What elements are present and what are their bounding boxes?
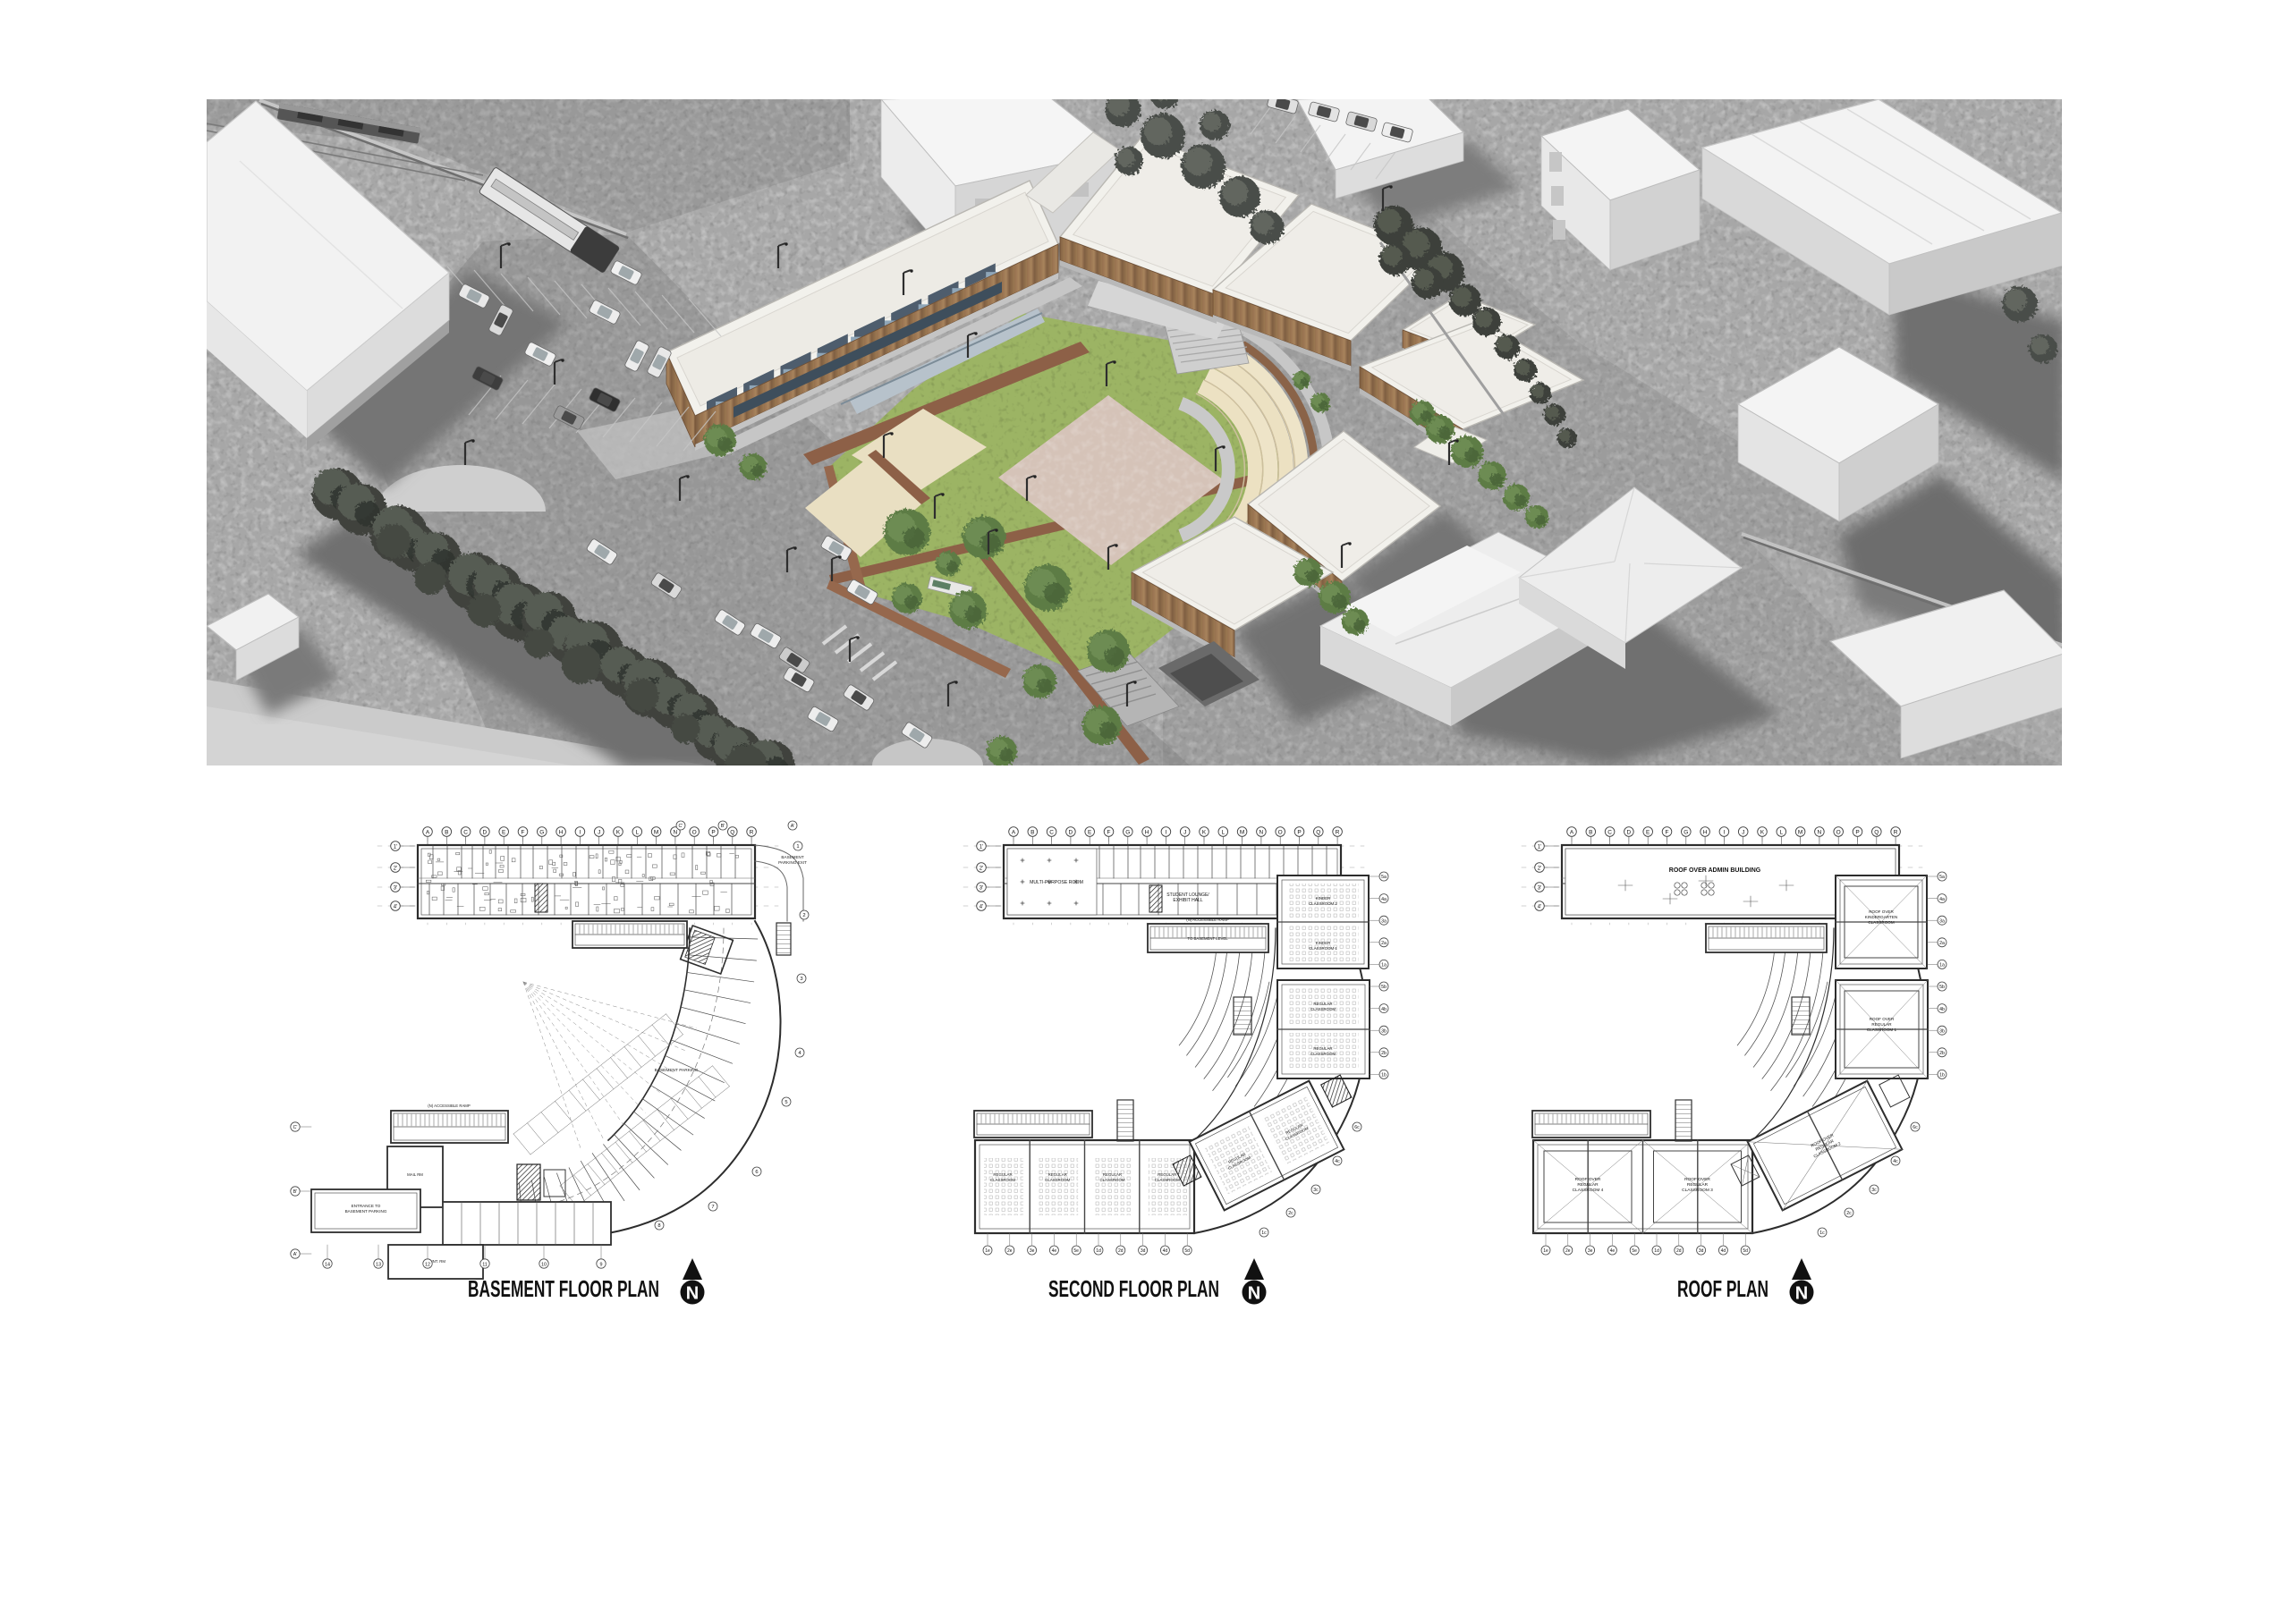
svg-text:3b: 3b xyxy=(1939,1028,1945,1034)
svg-text:ROOF OVER: ROOF OVER xyxy=(1575,1177,1601,1182)
svg-text:1a: 1a xyxy=(1939,963,1945,968)
svg-text:BASEMENT FLOOR PLAN: BASEMENT FLOOR PLAN xyxy=(468,1275,659,1302)
svg-text:REGULAR: REGULAR xyxy=(1313,1046,1332,1051)
svg-text:1e: 1e xyxy=(985,1248,990,1254)
svg-text:3c: 3c xyxy=(1871,1188,1877,1193)
svg-text:I: I xyxy=(1723,829,1725,835)
svg-text:CLASSROOM: CLASSROOM xyxy=(1868,920,1895,925)
svg-text:K: K xyxy=(1760,829,1765,835)
svg-text:5e: 5e xyxy=(1073,1248,1079,1254)
svg-text:4c: 4c xyxy=(1335,1159,1340,1164)
svg-text:ROOF PLAN: ROOF PLAN xyxy=(1677,1275,1768,1302)
svg-text:5b: 5b xyxy=(1939,985,1945,990)
svg-text:ROOF OVER: ROOF OVER xyxy=(1870,1017,1895,1021)
svg-text:10: 10 xyxy=(541,1262,547,1267)
svg-text:4e: 4e xyxy=(1610,1248,1616,1254)
svg-text:F: F xyxy=(1666,829,1669,835)
svg-text:R: R xyxy=(1894,829,1898,835)
svg-text:REGULAR: REGULAR xyxy=(1687,1182,1709,1188)
svg-text:C: C xyxy=(1607,829,1612,835)
svg-text:B: B xyxy=(1589,829,1592,835)
svg-text:4d: 4d xyxy=(1163,1248,1168,1254)
svg-text:5e: 5e xyxy=(1632,1248,1637,1254)
svg-text:B': B' xyxy=(721,824,725,829)
svg-text:N: N xyxy=(1818,829,1822,835)
svg-text:CLASSROOM: CLASSROOM xyxy=(1310,1007,1336,1011)
svg-text:CLASSROOM 2: CLASSROOM 2 xyxy=(1309,901,1337,906)
svg-text:1': 1' xyxy=(394,844,397,850)
svg-text:TO BASEMENT LEVEL: TO BASEMENT LEVEL xyxy=(1187,936,1228,941)
svg-text:N: N xyxy=(686,1284,699,1304)
svg-text:E: E xyxy=(502,829,506,835)
svg-text:6c: 6c xyxy=(1354,1125,1360,1130)
svg-text:CLASSROOM 1: CLASSROOM 1 xyxy=(1867,1028,1897,1032)
svg-text:N: N xyxy=(1248,1284,1260,1304)
svg-text:D: D xyxy=(483,829,488,835)
svg-text:1: 1 xyxy=(796,844,799,850)
svg-text:5b: 5b xyxy=(1381,985,1387,990)
svg-text:M: M xyxy=(654,829,658,835)
svg-text:CLASSROOM: CLASSROOM xyxy=(990,1178,1015,1182)
svg-text:5d: 5d xyxy=(1184,1248,1190,1254)
svg-text:4b: 4b xyxy=(1381,1007,1387,1012)
svg-text:A: A xyxy=(426,829,430,835)
svg-text:O: O xyxy=(1836,829,1841,835)
svg-text:Q: Q xyxy=(1316,829,1320,835)
svg-text:R: R xyxy=(1336,829,1340,835)
svg-text:4': 4' xyxy=(980,904,983,909)
svg-text:4': 4' xyxy=(1538,904,1541,909)
svg-text:CLASSROOM 1: CLASSROOM 1 xyxy=(1309,946,1337,951)
svg-text:BASEMENT PARKING: BASEMENT PARKING xyxy=(345,1209,387,1214)
svg-text:3': 3' xyxy=(980,885,983,891)
svg-text:2c: 2c xyxy=(1288,1211,1293,1216)
svg-text:6c: 6c xyxy=(1913,1125,1918,1130)
svg-text:KINDER: KINDER xyxy=(1316,941,1331,945)
svg-text:CLASSROOM: CLASSROOM xyxy=(1099,1178,1124,1182)
svg-text:MAIL RM: MAIL RM xyxy=(407,1172,423,1177)
svg-text:4d: 4d xyxy=(1721,1248,1726,1254)
svg-text:4e: 4e xyxy=(1052,1248,1057,1254)
svg-text:KINDER: KINDER xyxy=(1316,896,1331,901)
svg-text:Q: Q xyxy=(730,829,734,835)
svg-text:M: M xyxy=(1240,829,1244,835)
svg-text:7: 7 xyxy=(711,1205,714,1210)
svg-text:1b: 1b xyxy=(1939,1073,1945,1078)
svg-text:2: 2 xyxy=(802,913,805,918)
svg-text:REGULAR: REGULAR xyxy=(1313,1002,1332,1006)
svg-text:L: L xyxy=(1221,829,1225,835)
svg-text:9: 9 xyxy=(600,1262,603,1267)
svg-text:SECOND FLOOR PLAN: SECOND FLOOR PLAN xyxy=(1048,1275,1219,1302)
svg-text:5d: 5d xyxy=(1743,1248,1748,1254)
svg-text:4a: 4a xyxy=(1939,897,1945,902)
svg-text:1c: 1c xyxy=(1819,1231,1825,1236)
svg-text:B: B xyxy=(1030,829,1034,835)
svg-text:I: I xyxy=(579,829,581,835)
svg-text:5a: 5a xyxy=(1939,875,1945,880)
svg-text:J: J xyxy=(1183,829,1186,835)
svg-text:3b: 3b xyxy=(1381,1028,1387,1034)
svg-text:K: K xyxy=(1202,829,1207,835)
svg-text:3a: 3a xyxy=(1939,918,1945,924)
svg-text:3d: 3d xyxy=(1699,1248,1704,1254)
svg-text:14: 14 xyxy=(325,1262,330,1267)
svg-text:A': A' xyxy=(791,824,795,829)
svg-text:E: E xyxy=(1088,829,1092,835)
svg-text:8: 8 xyxy=(657,1223,660,1229)
svg-text:CLASSROOM 3: CLASSROOM 3 xyxy=(1682,1188,1713,1193)
svg-text:Q: Q xyxy=(1874,829,1879,835)
svg-text:ENTRANCE TO: ENTRANCE TO xyxy=(352,1204,381,1208)
svg-text:REGULAR: REGULAR xyxy=(1577,1182,1599,1188)
svg-text:2': 2' xyxy=(1538,866,1541,871)
svg-text:H: H xyxy=(1703,829,1708,835)
svg-text:P: P xyxy=(1855,829,1859,835)
svg-text:F: F xyxy=(1107,829,1111,835)
svg-text:6: 6 xyxy=(755,1170,758,1175)
svg-text:2e: 2e xyxy=(1565,1248,1571,1254)
svg-text:C': C' xyxy=(679,824,683,829)
svg-text:D: D xyxy=(1627,829,1632,835)
svg-text:2a: 2a xyxy=(1939,941,1945,946)
svg-text:CLASSROOM 4: CLASSROOM 4 xyxy=(1573,1188,1604,1193)
svg-text:3e: 3e xyxy=(1588,1248,1593,1254)
svg-text:PARKING EXIT: PARKING EXIT xyxy=(778,860,807,865)
svg-text:3c: 3c xyxy=(1313,1188,1319,1193)
svg-text:KINDERGARTEN: KINDERGARTEN xyxy=(1865,915,1897,919)
svg-text:1c: 1c xyxy=(1261,1231,1267,1236)
svg-text:P: P xyxy=(1297,829,1301,835)
svg-text:D: D xyxy=(1069,829,1073,835)
svg-text:11: 11 xyxy=(482,1262,488,1267)
svg-text:2': 2' xyxy=(394,866,397,871)
svg-text:1a: 1a xyxy=(1381,963,1387,968)
svg-text:2c: 2c xyxy=(1846,1211,1852,1216)
svg-text:3: 3 xyxy=(800,977,802,982)
svg-text:I: I xyxy=(1165,829,1166,835)
svg-text:4a: 4a xyxy=(1381,897,1387,902)
svg-text:1d: 1d xyxy=(1654,1248,1659,1254)
svg-text:1b: 1b xyxy=(1381,1073,1387,1078)
svg-text:R: R xyxy=(750,829,754,835)
svg-text:1': 1' xyxy=(980,844,983,850)
svg-text:1e: 1e xyxy=(1543,1248,1548,1254)
svg-text:2e: 2e xyxy=(1007,1248,1013,1254)
svg-text:REGULAR: REGULAR xyxy=(993,1172,1012,1177)
svg-text:N: N xyxy=(674,829,678,835)
svg-text:12: 12 xyxy=(425,1262,430,1267)
svg-text:REGULAR: REGULAR xyxy=(1158,1172,1176,1177)
svg-text:REGULAR: REGULAR xyxy=(1871,1022,1892,1027)
svg-text:(N) ACCESSIBLE RAMP: (N) ACCESSIBLE RAMP xyxy=(428,1104,471,1108)
svg-text:F: F xyxy=(522,829,525,835)
svg-text:2d: 2d xyxy=(1676,1248,1682,1254)
svg-text:C: C xyxy=(1049,829,1054,835)
svg-text:3d: 3d xyxy=(1141,1248,1146,1254)
svg-text:E: E xyxy=(1646,829,1650,835)
svg-text:4c: 4c xyxy=(1893,1159,1898,1164)
svg-text:P: P xyxy=(711,829,715,835)
svg-text:O: O xyxy=(692,829,697,835)
svg-text:A': A' xyxy=(293,1252,297,1257)
svg-text:ROOF OVER ADMIN BUILDING: ROOF OVER ADMIN BUILDING xyxy=(1669,867,1761,874)
svg-text:4': 4' xyxy=(394,904,397,909)
svg-text:N: N xyxy=(1795,1284,1808,1304)
svg-text:MULTI-PURPOSE ROOM: MULTI-PURPOSE ROOM xyxy=(1030,880,1083,885)
svg-text:3': 3' xyxy=(394,885,397,891)
svg-text:H: H xyxy=(1145,829,1149,835)
svg-text:REGULAR: REGULAR xyxy=(1103,1172,1122,1177)
svg-text:13: 13 xyxy=(376,1262,381,1267)
svg-text:2a: 2a xyxy=(1381,941,1387,946)
svg-text:G: G xyxy=(539,829,544,835)
svg-text:BASEMENT PARKING: BASEMENT PARKING xyxy=(655,1068,699,1073)
svg-text:2b: 2b xyxy=(1939,1051,1945,1056)
svg-text:1': 1' xyxy=(1538,844,1541,850)
svg-text:(N) ACCESSIBLE RAMP: (N) ACCESSIBLE RAMP xyxy=(1186,918,1229,922)
svg-text:N: N xyxy=(1259,829,1264,835)
svg-text:L: L xyxy=(635,829,639,835)
svg-text:5a: 5a xyxy=(1381,875,1387,880)
svg-text:O: O xyxy=(1278,829,1283,835)
svg-text:C': C' xyxy=(293,1125,298,1130)
svg-text:J: J xyxy=(1742,829,1744,835)
svg-text:B': B' xyxy=(293,1189,297,1195)
svg-text:G: G xyxy=(1125,829,1130,835)
svg-text:ROOF OVER: ROOF OVER xyxy=(1869,909,1894,914)
svg-text:K: K xyxy=(616,829,621,835)
svg-text:G: G xyxy=(1684,829,1688,835)
svg-text:EXHIBIT HALL: EXHIBIT HALL xyxy=(1173,898,1202,903)
svg-text:ROOF OVER: ROOF OVER xyxy=(1684,1177,1710,1182)
svg-text:B: B xyxy=(445,829,448,835)
svg-text:3': 3' xyxy=(1538,885,1541,891)
svg-text:BASEMENT: BASEMENT xyxy=(781,855,803,859)
svg-text:H: H xyxy=(559,829,564,835)
svg-text:C: C xyxy=(463,829,468,835)
svg-text:2d: 2d xyxy=(1118,1248,1124,1254)
svg-text:M: M xyxy=(1798,829,1802,835)
svg-text:2b: 2b xyxy=(1381,1051,1387,1056)
svg-text:REGULAR: REGULAR xyxy=(1048,1172,1067,1177)
svg-text:5: 5 xyxy=(785,1100,787,1105)
svg-text:CLASSROOM: CLASSROOM xyxy=(1310,1052,1336,1056)
svg-text:3e: 3e xyxy=(1030,1248,1035,1254)
svg-text:A: A xyxy=(1570,829,1574,835)
svg-text:2': 2' xyxy=(980,866,983,871)
svg-text:1d: 1d xyxy=(1096,1248,1101,1254)
svg-text:CLASSROOM: CLASSROOM xyxy=(1155,1178,1180,1182)
svg-text:CLASSROOM: CLASSROOM xyxy=(1045,1178,1070,1182)
svg-text:A: A xyxy=(1012,829,1016,835)
svg-text:3a: 3a xyxy=(1381,918,1387,924)
svg-text:4b: 4b xyxy=(1939,1007,1945,1012)
svg-text:L: L xyxy=(1779,829,1783,835)
svg-text:J: J xyxy=(598,829,600,835)
